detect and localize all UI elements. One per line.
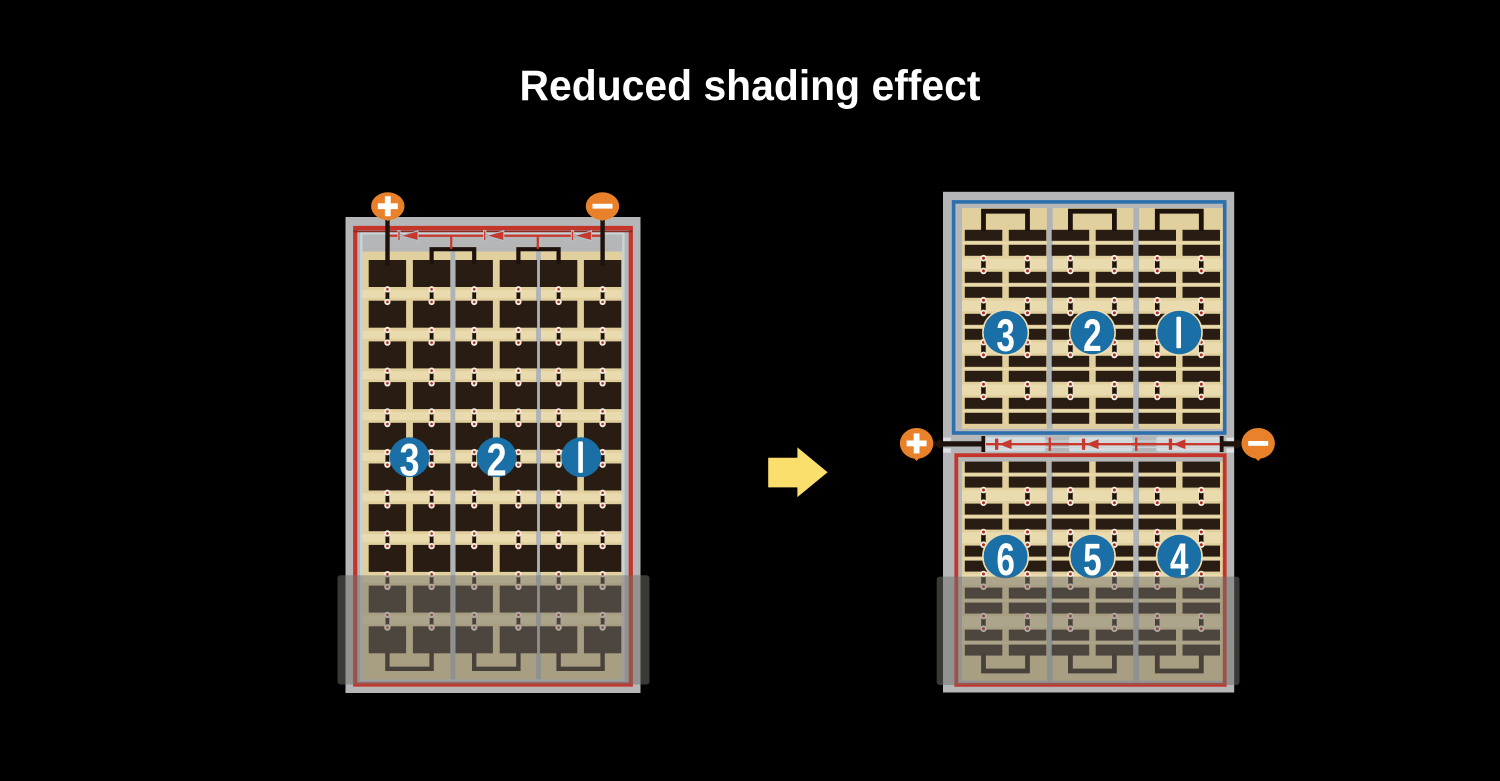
svg-text:2: 2 — [1083, 310, 1102, 361]
svg-text:Reduced shading effect: Reduced shading effect — [520, 63, 981, 110]
svg-text:3: 3 — [400, 435, 420, 486]
svg-text:2: 2 — [487, 435, 507, 486]
svg-text:3: 3 — [996, 310, 1015, 361]
